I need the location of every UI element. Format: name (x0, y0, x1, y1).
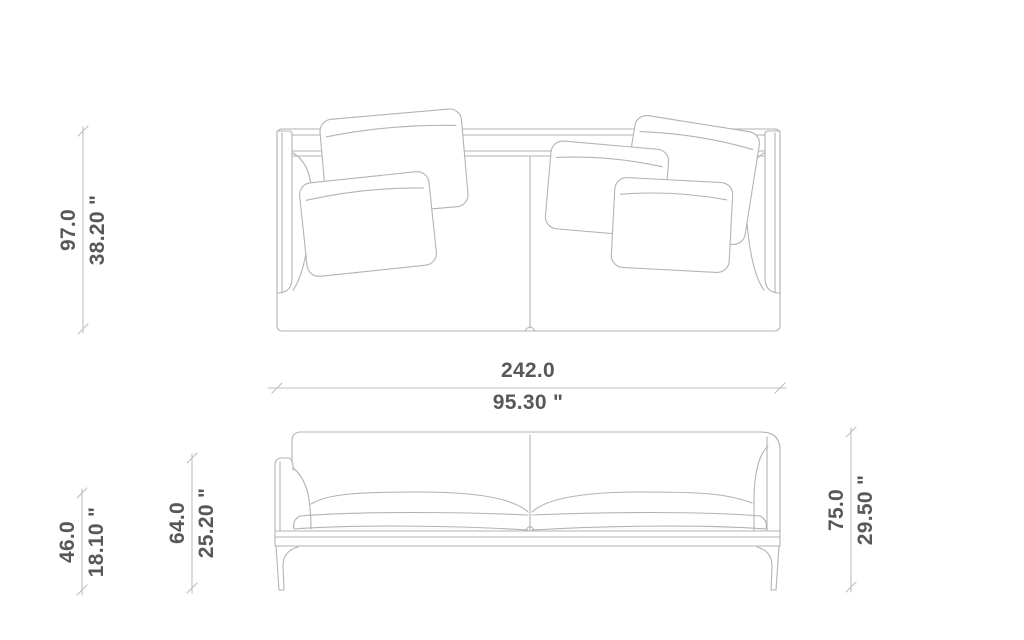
pillow (298, 170, 437, 277)
right-cushion-top (532, 492, 752, 512)
sofa-front-view (275, 432, 780, 590)
width-inches-label: 95.30 " (493, 391, 563, 415)
sofa-dimension-drawing: 97.0 38.20 " 242.0 95.30 " 46.0 18.10 " … (0, 0, 1024, 640)
arm-height-cm-label: 64.0 (166, 502, 190, 544)
depth-cm-label: 97.0 (57, 209, 81, 251)
right-arm-top (765, 131, 780, 293)
depth-inches-label: 38.20 " (86, 195, 110, 265)
width-cm-label: 242.0 (501, 359, 555, 383)
left-leg (276, 546, 298, 590)
backrest-outline (292, 432, 780, 546)
right-leg (757, 546, 779, 590)
left-arm-front (275, 458, 293, 546)
left-arm-top (277, 131, 292, 293)
pillow (611, 177, 734, 273)
overall-height-cm-label: 75.0 (825, 489, 849, 531)
right-wing-curve (754, 446, 768, 531)
left-cushion-top (311, 492, 528, 512)
seat-height-inches-label: 18.10 " (85, 507, 109, 577)
sofa-top-view (277, 108, 780, 331)
base-rail (275, 531, 780, 546)
seat-height-cm-label: 46.0 (56, 521, 80, 563)
center-seam (525, 157, 535, 331)
arm-height-inches-label: 25.20 " (195, 488, 219, 558)
overall-height-inches-label: 29.50 " (854, 475, 878, 545)
